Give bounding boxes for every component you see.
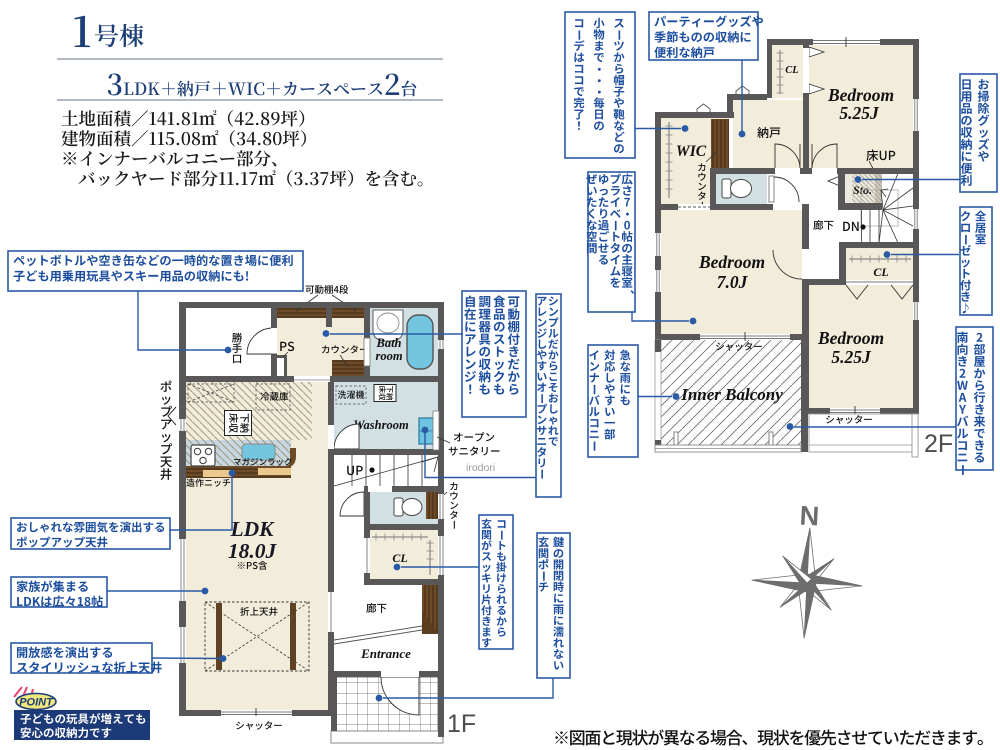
svg-text:CL: CL [785, 65, 798, 76]
svg-text:18.0J: 18.0J [228, 539, 278, 563]
svg-text:2F: 2F [924, 430, 953, 458]
svg-text:7.0J: 7.0J [717, 272, 749, 292]
svg-text:N: N [799, 501, 820, 532]
svg-text:1F: 1F [447, 710, 476, 738]
svg-text:Bath: Bath [375, 336, 401, 350]
svg-text:irodori: irodori [466, 462, 495, 474]
svg-text:Entrance: Entrance [360, 646, 411, 661]
svg-text:CL: CL [392, 551, 407, 565]
svg-text:WIC: WIC [676, 143, 707, 160]
svg-text:Bedroom: Bedroom [827, 85, 894, 105]
svg-text:5.25J: 5.25J [839, 103, 880, 123]
svg-text:LDK: LDK [230, 517, 276, 541]
svg-text:POINT: POINT [19, 697, 54, 709]
svg-text:Inner Balcony: Inner Balcony [680, 385, 783, 404]
svg-text:Washroom: Washroom [353, 418, 409, 432]
svg-text:5.25J: 5.25J [831, 347, 872, 367]
svg-text:CL: CL [873, 265, 888, 279]
svg-text:room: room [375, 349, 402, 363]
svg-text:Bedroom: Bedroom [817, 328, 884, 348]
svg-text:Bedroom: Bedroom [698, 252, 765, 272]
